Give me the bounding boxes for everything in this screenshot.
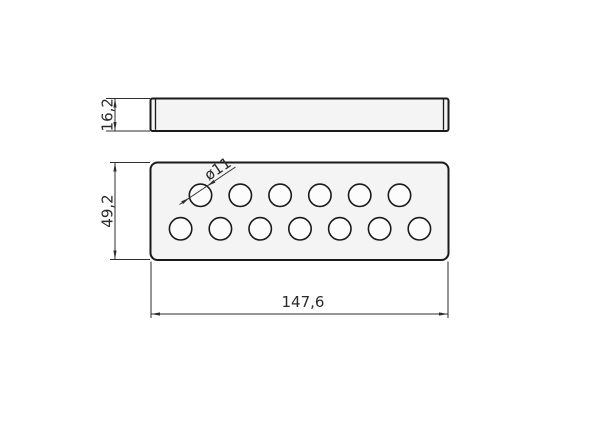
- side-view: [151, 99, 449, 132]
- side-view-body: [151, 99, 449, 132]
- dimension-text-top-view-width: 147,6: [282, 293, 325, 311]
- hole-top-4: [309, 184, 331, 206]
- dimension-text-side-height: 16,2: [99, 98, 117, 131]
- arrow-left-icon: [151, 312, 160, 315]
- top-view-body: [151, 163, 449, 261]
- hole-bottom-4: [289, 218, 311, 240]
- dimension-top-view-height: 49,2: [99, 163, 151, 260]
- top-view: [151, 163, 449, 261]
- hole-bottom-3: [249, 218, 271, 240]
- arrow-right-icon: [439, 312, 448, 315]
- hole-bottom-5: [329, 218, 351, 240]
- hole-bottom-6: [368, 218, 390, 240]
- dimension-side-height: 16,2: [99, 98, 151, 131]
- technical-drawing-canvas: 16,2 ø11: [0, 0, 600, 424]
- hole-bottom-7: [408, 218, 430, 240]
- hole-bottom-2: [209, 218, 231, 240]
- dimension-text-top-view-height: 49,2: [99, 194, 117, 227]
- dimension-top-view-width: 147,6: [151, 262, 448, 319]
- hole-bottom-1: [169, 218, 191, 240]
- drawing-sheet: 16,2 ø11: [0, 0, 600, 424]
- arrow-down-icon: [113, 251, 116, 260]
- hole-top-5: [349, 184, 371, 206]
- hole-top-3: [269, 184, 291, 206]
- hole-top-6: [388, 184, 410, 206]
- arrow-up-icon: [113, 163, 116, 172]
- hole-top-2: [229, 184, 251, 206]
